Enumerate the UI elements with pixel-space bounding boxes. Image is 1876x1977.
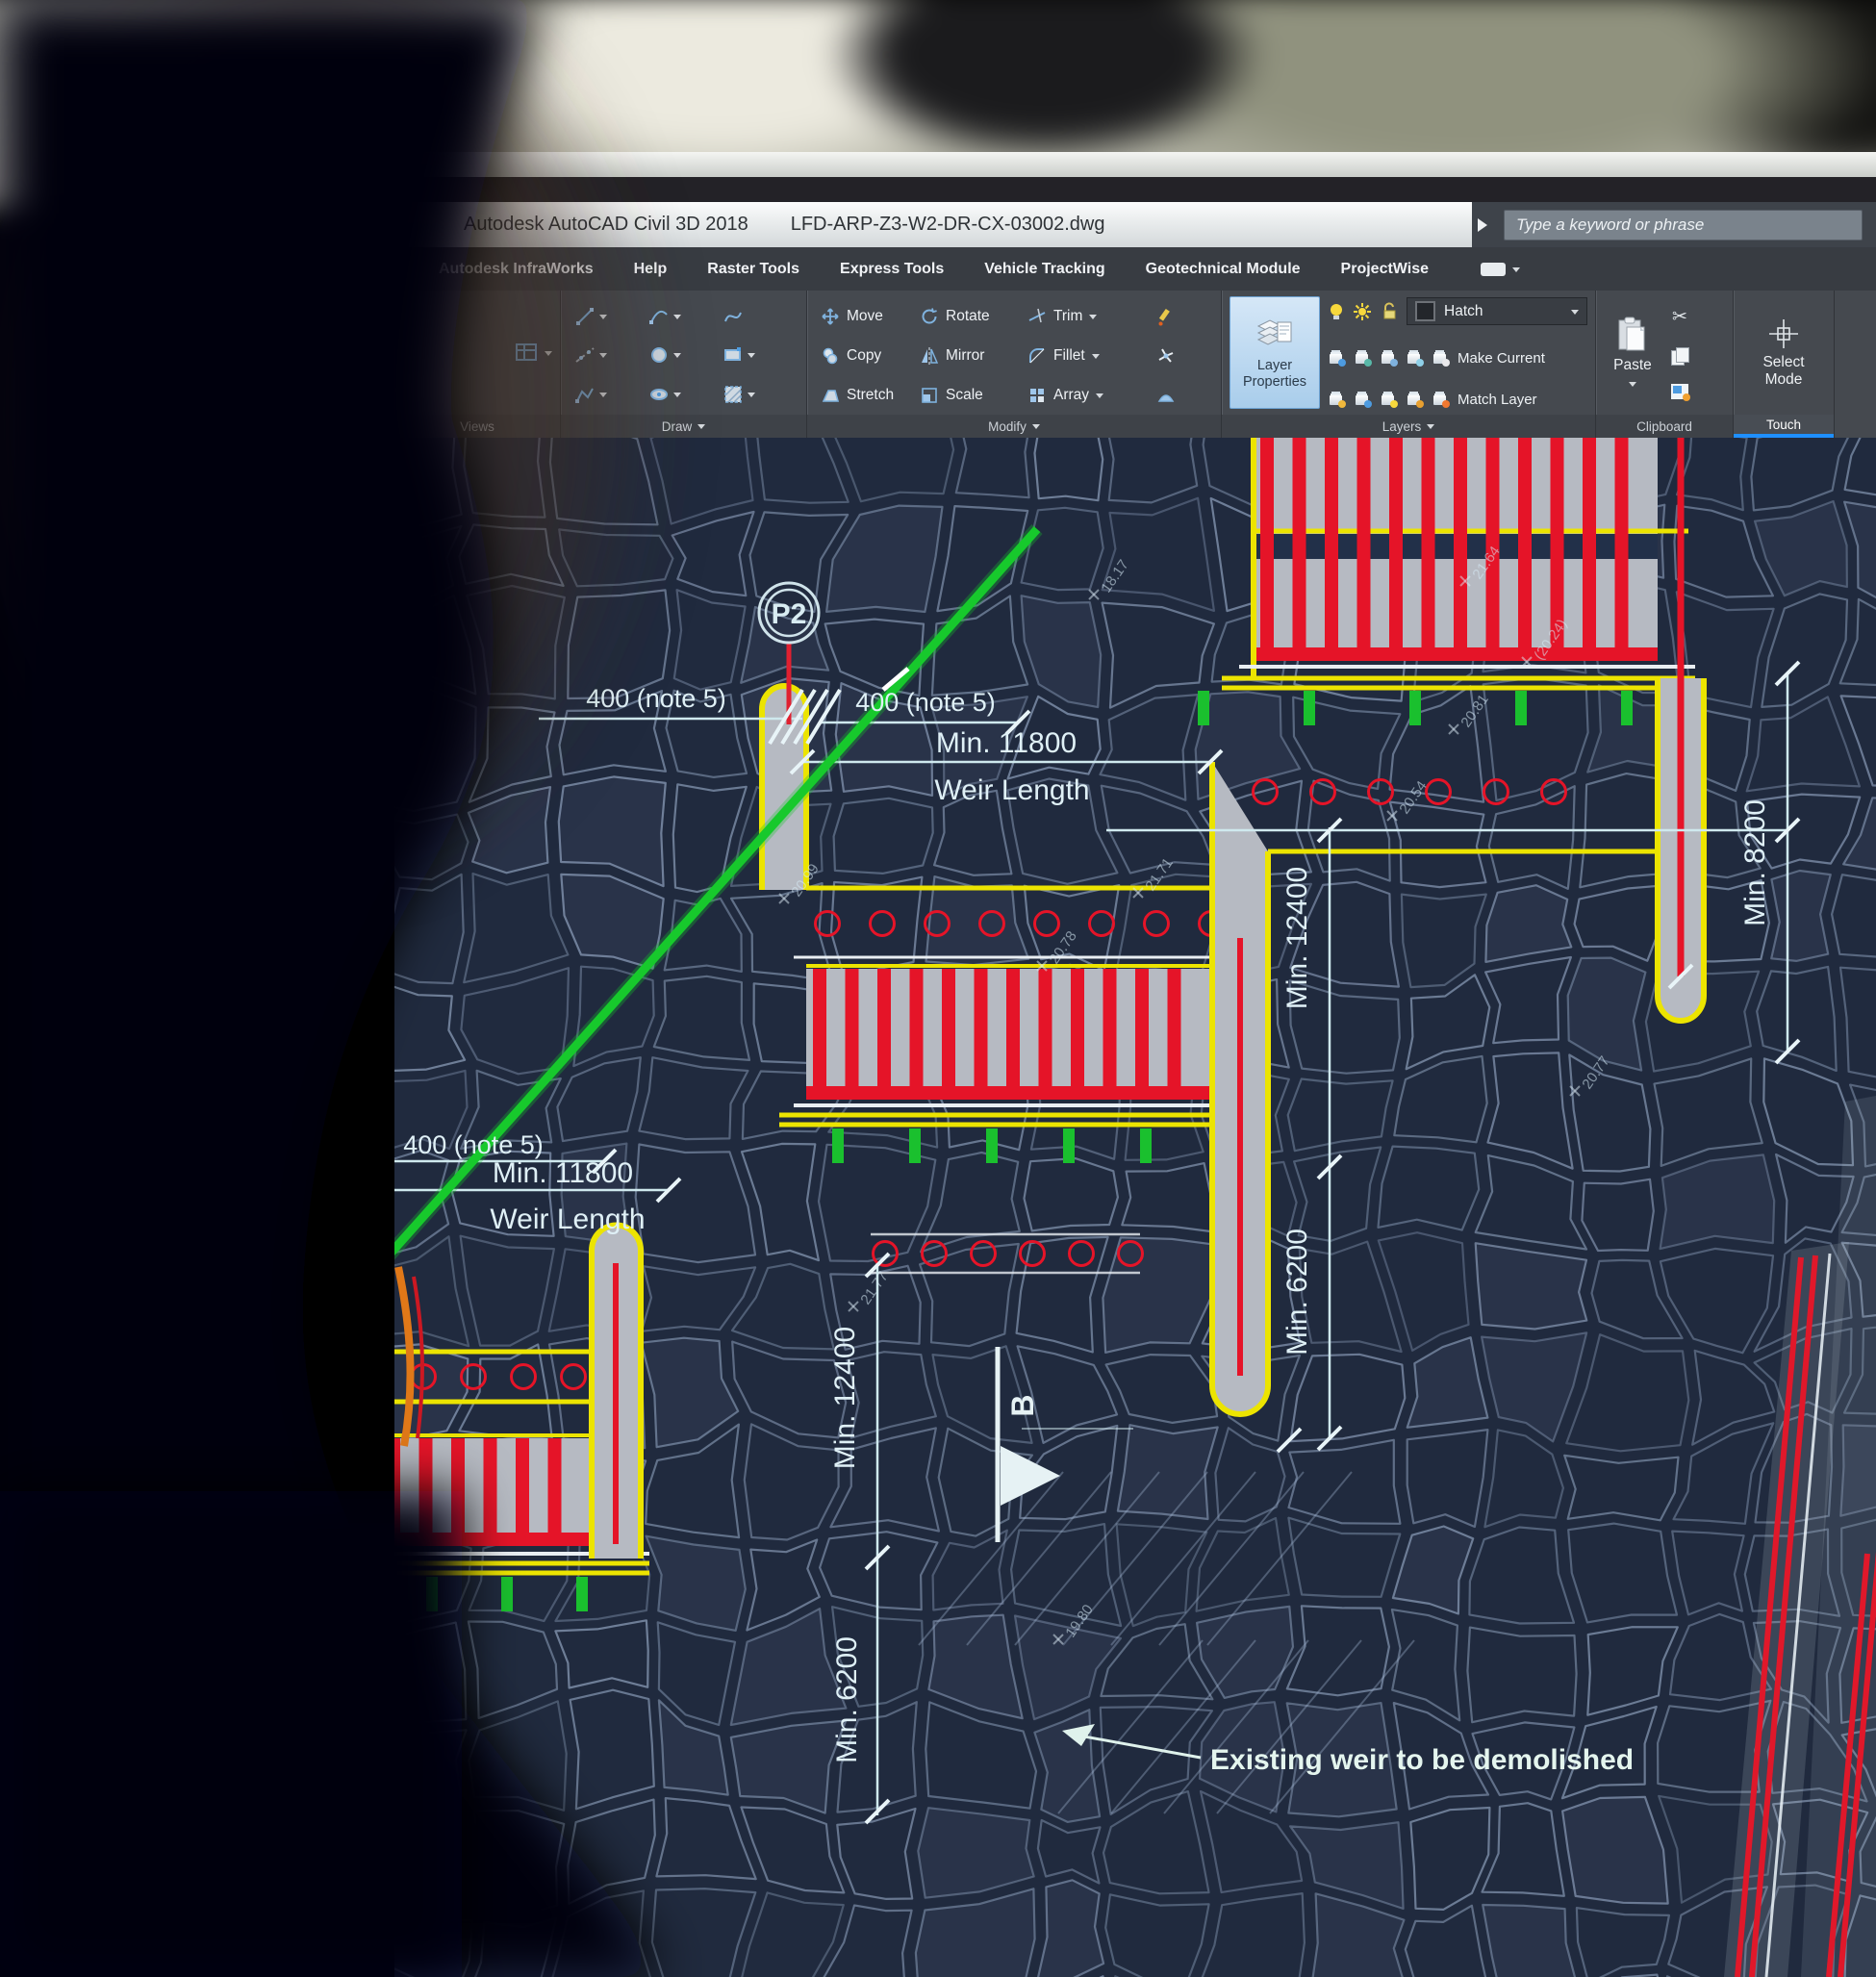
copy-clip-icon[interactable]	[1671, 347, 1688, 365]
layer-tool-icon[interactable]	[1328, 392, 1346, 408]
p2-label: P2	[772, 598, 807, 630]
spline-tool[interactable]	[723, 298, 797, 335]
mirror-button[interactable]: Mirror	[920, 336, 1027, 375]
panel-views: Views	[394, 291, 561, 438]
chevron-down-icon	[1629, 382, 1636, 391]
photo-of-monitor: Autodesk AutoCAD Civil 3D 2018 LFD-ARP-Z…	[0, 0, 1876, 1977]
explode-button[interactable]	[1156, 336, 1199, 375]
rectangle-tool[interactable]	[723, 337, 797, 373]
circle-tool[interactable]	[648, 337, 723, 373]
offset-icon	[1156, 386, 1176, 405]
dim-min-12400-left: Min. 12400	[829, 1327, 861, 1469]
monitor-top-edge	[383, 152, 1876, 179]
layer-properties-icon	[1255, 315, 1295, 353]
paste-icon	[1615, 316, 1650, 354]
stretch-icon	[821, 386, 840, 405]
tab-raster-tools[interactable]: Raster Tools	[707, 261, 799, 278]
ribbon-display-toggle[interactable]	[1481, 263, 1520, 276]
array-icon	[1027, 386, 1047, 405]
match-layer-icon[interactable]	[1432, 392, 1450, 408]
rotate-button[interactable]: Rotate	[920, 296, 1027, 336]
erase-icon	[1156, 307, 1176, 326]
match-layer-button[interactable]: Match Layer	[1458, 392, 1537, 408]
copy-button[interactable]: Copy	[821, 336, 920, 375]
weir-length-left: Weir Length	[490, 1204, 645, 1235]
draw-panel-label[interactable]: Draw	[662, 419, 693, 434]
layer-freeze-sun-icon[interactable]	[1353, 302, 1372, 321]
help-search-input[interactable]: Type a keyword or phrase	[1504, 210, 1863, 241]
views-panel-label: Views	[460, 419, 494, 434]
paste-button[interactable]: Paste	[1602, 296, 1663, 409]
layer-tool-icon[interactable]	[1380, 392, 1398, 408]
paste-special-icon[interactable]	[1671, 384, 1688, 399]
infocenter-area: Type a keyword or phrase	[1472, 202, 1876, 247]
arc-tool[interactable]	[648, 298, 723, 335]
dim-min-6200-left: Min. 6200	[831, 1636, 863, 1763]
dim-min-6200-center: Min. 6200	[1281, 1229, 1313, 1356]
layer-tool-icon[interactable]	[1354, 392, 1372, 408]
construction-line-tool[interactable]	[574, 337, 648, 373]
view-icon[interactable]	[514, 341, 539, 366]
ribbon-tab-bar: Autodesk InfraWorks Help Raster Tools Ex…	[394, 247, 1876, 291]
trim-icon	[1027, 307, 1047, 326]
dim-min-8200-right: Min. 8200	[1739, 799, 1771, 926]
explode-icon	[1156, 346, 1176, 366]
search-placeholder: Type a keyword or phrase	[1516, 215, 1704, 235]
title-bar: Autodesk AutoCAD Civil 3D 2018 LFD-ARP-Z…	[394, 202, 1876, 247]
ribbon: Views	[394, 291, 1876, 438]
move-icon	[821, 307, 840, 326]
dim-min-11800-top: Min. 11800	[936, 727, 1077, 759]
scale-button[interactable]: Scale	[920, 375, 1027, 415]
mirror-icon	[920, 346, 939, 366]
drawing-canvas[interactable]: B P2 400 (note 5) 400 (note 5) 400 (note…	[394, 438, 1876, 1977]
layer-on-bulb-icon[interactable]	[1328, 302, 1345, 321]
move-button[interactable]: Move	[821, 296, 920, 336]
panel-modify: Move Rotate Trim Copy	[807, 291, 1222, 438]
ellipse-tool[interactable]	[648, 376, 723, 413]
dim-400-note5-left: 400 (note 5)	[403, 1130, 544, 1159]
offset-button[interactable]	[1156, 375, 1199, 415]
cut-icon[interactable]: ✂	[1672, 306, 1687, 328]
chevron-down-icon[interactable]	[545, 351, 552, 360]
modify-panel-label[interactable]: Modify	[988, 419, 1027, 434]
make-current-icon[interactable]	[1432, 350, 1450, 367]
clipboard-panel-label: Clipboard	[1636, 419, 1692, 434]
weir-length-top: Weir Length	[934, 774, 1089, 806]
tab-vehicle-tracking[interactable]: Vehicle Tracking	[984, 261, 1104, 278]
tab-autodesk-infraworks[interactable]: Autodesk InfraWorks	[439, 261, 594, 278]
hatch-tool[interactable]	[723, 376, 797, 413]
line-tool[interactable]	[574, 298, 648, 335]
layer-tool-icon[interactable]	[1328, 350, 1346, 367]
monitor-bezel	[383, 177, 1876, 203]
scale-icon	[920, 386, 939, 405]
polyline-tool[interactable]	[574, 376, 648, 413]
panel-touch: Select Mode Touch	[1734, 291, 1835, 438]
current-layer-name: Hatch	[1444, 303, 1483, 320]
tab-projectwise[interactable]: ProjectWise	[1341, 261, 1429, 278]
layer-color-swatch	[1415, 301, 1435, 321]
layer-tool-icon[interactable]	[1406, 392, 1424, 408]
stretch-button[interactable]: Stretch	[821, 375, 920, 415]
layer-select-dropdown[interactable]: Hatch	[1407, 297, 1587, 325]
tab-geotechnical-module[interactable]: Geotechnical Module	[1146, 261, 1301, 278]
erase-button[interactable]	[1156, 296, 1199, 336]
dim-400-note5-top-right: 400 (note 5)	[855, 688, 996, 717]
ribbon-toggle-icon	[1481, 263, 1506, 276]
document-name: LFD-ARP-Z3-W2-DR-CX-03002.dwg	[791, 214, 1105, 236]
layer-tool-icon[interactable]	[1380, 350, 1398, 367]
collapse-arrow-icon[interactable]	[1478, 218, 1494, 232]
rotate-icon	[920, 307, 939, 326]
layer-properties-button[interactable]: Layer Properties	[1230, 296, 1320, 409]
select-mode-icon[interactable]	[1767, 317, 1800, 350]
trim-button[interactable]: Trim	[1027, 296, 1156, 336]
demolish-note-text: Existing weir to be demolished	[1210, 1744, 1634, 1776]
layers-panel-label[interactable]: Layers	[1382, 419, 1422, 434]
dim-min-11800-left: Min. 11800	[493, 1157, 633, 1189]
layer-tool-icon[interactable]	[1354, 350, 1372, 367]
fillet-button[interactable]: Fillet	[1027, 336, 1156, 375]
copy-icon	[821, 346, 840, 366]
chevron-down-icon	[1571, 310, 1579, 318]
autocad-window: Autodesk AutoCAD Civil 3D 2018 LFD-ARP-Z…	[394, 202, 1876, 1977]
app-title: Autodesk AutoCAD Civil 3D 2018	[464, 214, 748, 236]
make-current-button[interactable]: Make Current	[1458, 350, 1545, 367]
select-mode-button[interactable]: Select Mode	[1756, 354, 1812, 389]
dim-400-note5-top-left: 400 (note 5)	[586, 684, 726, 713]
panel-layers: Layer Properties Hatch	[1222, 291, 1596, 438]
tab-help[interactable]: Help	[634, 261, 668, 278]
fillet-icon	[1027, 346, 1047, 366]
dim-min-12400-center: Min. 12400	[1281, 867, 1313, 1009]
section-b-label: B	[1005, 1394, 1040, 1416]
panel-clipboard: Paste ✂ Clipboard	[1596, 291, 1734, 438]
touch-panel-label: Touch	[1766, 418, 1801, 432]
layer-tool-icon[interactable]	[1406, 350, 1424, 367]
array-button[interactable]: Array	[1027, 375, 1156, 415]
layer-unlock-icon[interactable]	[1380, 302, 1399, 321]
tab-express-tools[interactable]: Express Tools	[840, 261, 944, 278]
panel-draw: Draw	[561, 291, 807, 438]
